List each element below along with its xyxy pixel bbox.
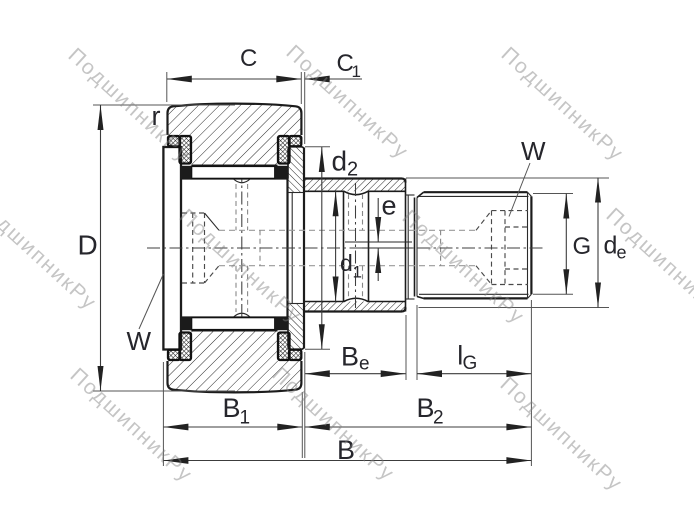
svg-text:1: 1 <box>240 408 251 429</box>
svg-text:G: G <box>573 233 592 260</box>
svg-text:C: C <box>240 45 257 72</box>
svg-text:e: e <box>617 243 627 263</box>
svg-text:W: W <box>521 136 546 166</box>
svg-text:G: G <box>463 353 478 374</box>
svg-text:1: 1 <box>352 62 361 81</box>
svg-text:d: d <box>340 250 353 276</box>
svg-text:e: e <box>359 354 370 375</box>
svg-text:d: d <box>604 232 618 260</box>
svg-text:1: 1 <box>353 263 362 282</box>
svg-text:B: B <box>417 393 435 423</box>
svg-text:d: d <box>332 146 348 177</box>
svg-text:2: 2 <box>433 408 444 429</box>
svg-text:2: 2 <box>347 159 358 181</box>
svg-text:W: W <box>127 326 152 356</box>
svg-text:B: B <box>341 342 359 372</box>
svg-text:e: e <box>382 191 397 221</box>
svg-text:D: D <box>78 230 98 261</box>
svg-text:B: B <box>223 393 241 423</box>
